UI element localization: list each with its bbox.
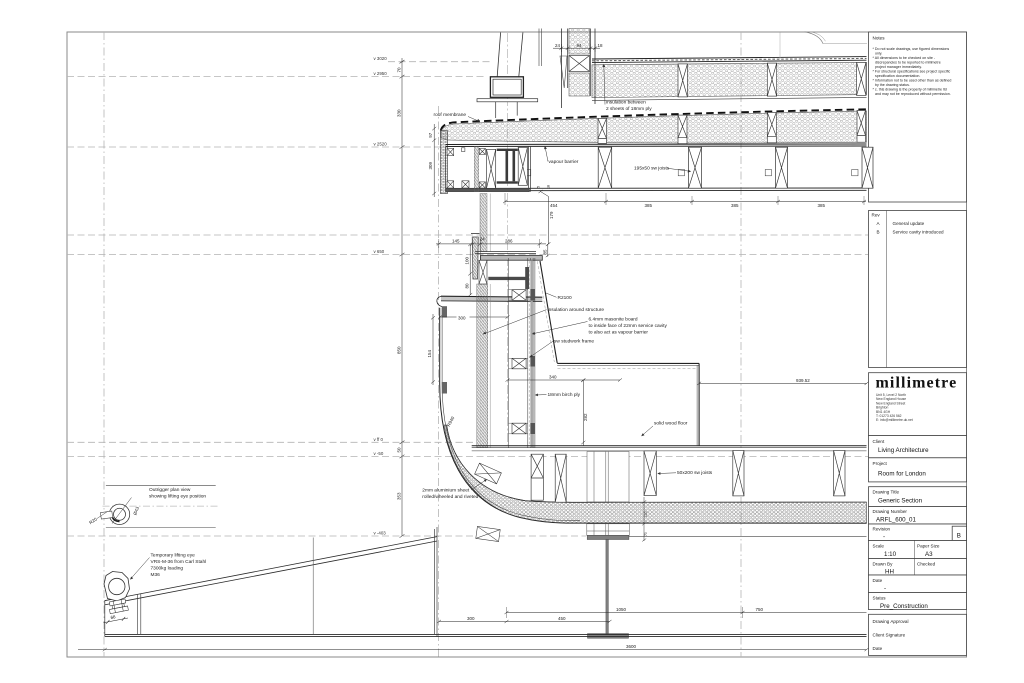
svg-text:Revision: Revision	[873, 527, 891, 532]
svg-text:Outrigger plan view: Outrigger plan view	[149, 487, 191, 493]
svg-text:Room for London: Room for London	[878, 471, 926, 478]
svg-text:Client Signature: Client Signature	[873, 633, 906, 638]
svg-text:18: 18	[598, 43, 604, 48]
svg-text:only.: only.	[875, 52, 882, 56]
svg-text:Pre_Construction: Pre_Construction	[880, 603, 928, 610]
svg-text:3600: 3600	[626, 644, 637, 649]
svg-text:850: 850	[397, 346, 402, 354]
svg-text:insulation between: insulation between	[606, 100, 646, 106]
svg-text:-: -	[883, 534, 885, 541]
svg-text:1:10: 1:10	[884, 551, 897, 558]
svg-text:50x200 sw joists: 50x200 sw joists	[677, 470, 713, 476]
svg-text:ARFL_600_01: ARFL_600_01	[876, 517, 916, 524]
svg-text:rolled/wheeled and riveted: rolled/wheeled and riveted	[422, 494, 478, 500]
svg-text:2mm aluminium sheet: 2mm aluminium sheet	[422, 488, 470, 494]
svg-text:VRS-M-36 from Carl Stahl: VRS-M-36 from Carl Stahl	[151, 559, 207, 565]
svg-text:and may not be reproduced with: and may not be reproduced without permis…	[875, 92, 951, 96]
svg-text:v -403: v -403	[374, 531, 387, 536]
svg-text:309: 309	[428, 161, 433, 169]
svg-text:154: 154	[427, 349, 432, 357]
svg-text:385: 385	[818, 203, 826, 208]
svg-text:M36: M36	[151, 572, 161, 578]
svg-text:project manager immediately.: project manager immediately.	[875, 65, 922, 69]
svg-text:insulation around structure: insulation around structure	[548, 307, 605, 313]
svg-text:E: info@millimetre.uk.net: E: info@millimetre.uk.net	[876, 418, 913, 422]
svg-text:353: 353	[397, 492, 402, 500]
svg-text:showing lifting eye position: showing lifting eye position	[149, 494, 206, 500]
svg-text:286: 286	[505, 238, 513, 243]
svg-text:179: 179	[549, 211, 554, 219]
svg-text:100: 100	[464, 256, 469, 264]
svg-text:v ff 0: v ff 0	[374, 437, 384, 442]
svg-text:330: 330	[397, 109, 402, 117]
svg-text:70: 70	[397, 67, 402, 73]
svg-text:Date: Date	[873, 646, 883, 651]
svg-text:6.4mm masonite board: 6.4mm masonite board	[589, 317, 638, 323]
svg-text:300: 300	[458, 315, 466, 320]
svg-text:80: 80	[464, 283, 469, 289]
svg-text:70: 70	[644, 532, 648, 536]
svg-text:to also act as vapour barrier: to also act as vapour barrier	[589, 330, 649, 336]
svg-text:Drawing Number: Drawing Number	[873, 509, 908, 514]
svg-text:Rev: Rev	[872, 213, 881, 218]
svg-text:Paper Size: Paper Size	[917, 544, 940, 549]
svg-text:454: 454	[550, 203, 558, 208]
svg-text:Drawing Title: Drawing Title	[873, 490, 900, 495]
svg-text:R2100: R2100	[558, 295, 572, 301]
svg-text:85: 85	[543, 249, 548, 255]
svg-text:939.52: 939.52	[796, 378, 810, 383]
svg-text:Service cavity introduced: Service cavity introduced	[893, 230, 945, 235]
svg-text:by the drawing status.: by the drawing status.	[875, 83, 910, 87]
svg-text:Living Architecture: Living Architecture	[878, 447, 929, 454]
svg-text:millimetre: millimetre	[876, 375, 958, 392]
svg-text:100: 100	[644, 511, 648, 517]
svg-text:24: 24	[555, 43, 561, 48]
svg-text:v -50: v -50	[374, 451, 384, 456]
svg-text:340: 340	[549, 374, 557, 379]
svg-text:94: 94	[577, 43, 583, 48]
svg-text:Date: Date	[873, 578, 883, 583]
svg-text:18: 18	[547, 185, 551, 189]
svg-text:Status: Status	[873, 596, 887, 601]
svg-text:Client: Client	[873, 439, 885, 444]
svg-text:to inside face of 22mm service: to inside face of 22mm service cavity	[589, 323, 668, 329]
svg-text:solid wood floor: solid wood floor	[654, 421, 688, 427]
svg-text:Temporary lifting eye: Temporary lifting eye	[151, 553, 196, 559]
svg-text:18mm birch ply: 18mm birch ply	[548, 392, 581, 398]
svg-text:vapour barrier: vapour barrier	[549, 159, 579, 165]
svg-text:195x50 sw joists: 195x50 sw joists	[634, 166, 670, 172]
svg-text:Checked: Checked	[917, 562, 936, 567]
svg-text:750: 750	[756, 607, 764, 612]
svg-text:A3: A3	[925, 551, 933, 558]
svg-text:300: 300	[467, 616, 475, 621]
svg-text:specification documentation.: specification documentation.	[875, 74, 920, 78]
svg-text:v 3020: v 3020	[374, 56, 388, 61]
svg-text:282: 282	[583, 413, 588, 421]
svg-text:* Do not scale drawings, use f: * Do not scale drawings, use figured dim…	[873, 47, 950, 51]
svg-text:* c. this drawing is the prope: * c. this drawing is the property of mil…	[873, 88, 947, 92]
svg-text:B: B	[957, 533, 961, 540]
svg-text:7300kg loading: 7300kg loading	[151, 566, 184, 572]
svg-text:Scale: Scale	[873, 544, 885, 549]
svg-text:General update: General update	[893, 221, 925, 226]
svg-text:24: 24	[480, 237, 486, 242]
svg-text:Notes: Notes	[873, 36, 886, 41]
svg-text:v 650: v 650	[374, 249, 385, 254]
svg-text:Drawn By: Drawn By	[873, 562, 894, 567]
svg-text:discrepancies to be reported t: discrepancies to be reported to millimet…	[875, 61, 941, 65]
svg-text:B: B	[877, 230, 880, 235]
svg-text:Project: Project	[873, 461, 888, 466]
svg-text:v 2520: v 2520	[374, 142, 388, 147]
svg-text:385: 385	[731, 203, 739, 208]
svg-text:145: 145	[452, 238, 460, 243]
svg-text:* All dimensions to be checked: * All dimensions to be checked on site -	[873, 56, 936, 60]
svg-text:* Information not to be used o: * Information not to be used other than …	[873, 79, 952, 83]
svg-text:* For structural specification: * For structural specifications see proj…	[873, 70, 951, 74]
svg-text:Drawing Approval: Drawing Approval	[873, 619, 909, 624]
svg-text:450: 450	[558, 616, 566, 621]
svg-text:v 2950: v 2950	[374, 71, 388, 76]
svg-text:roof membrane: roof membrane	[434, 112, 467, 118]
svg-text:HH: HH	[885, 569, 894, 576]
svg-text:5: 5	[537, 186, 541, 188]
svg-text:-: -	[884, 585, 886, 592]
svg-text:Generic Section: Generic Section	[878, 498, 923, 505]
svg-text:50: 50	[397, 447, 402, 453]
svg-text:1050: 1050	[616, 607, 627, 612]
svg-text:97: 97	[428, 132, 433, 138]
svg-text:sw studwork frame: sw studwork frame	[554, 339, 594, 345]
svg-text:385: 385	[645, 203, 653, 208]
svg-text:2 sheets of 18mm ply: 2 sheets of 18mm ply	[606, 106, 652, 112]
